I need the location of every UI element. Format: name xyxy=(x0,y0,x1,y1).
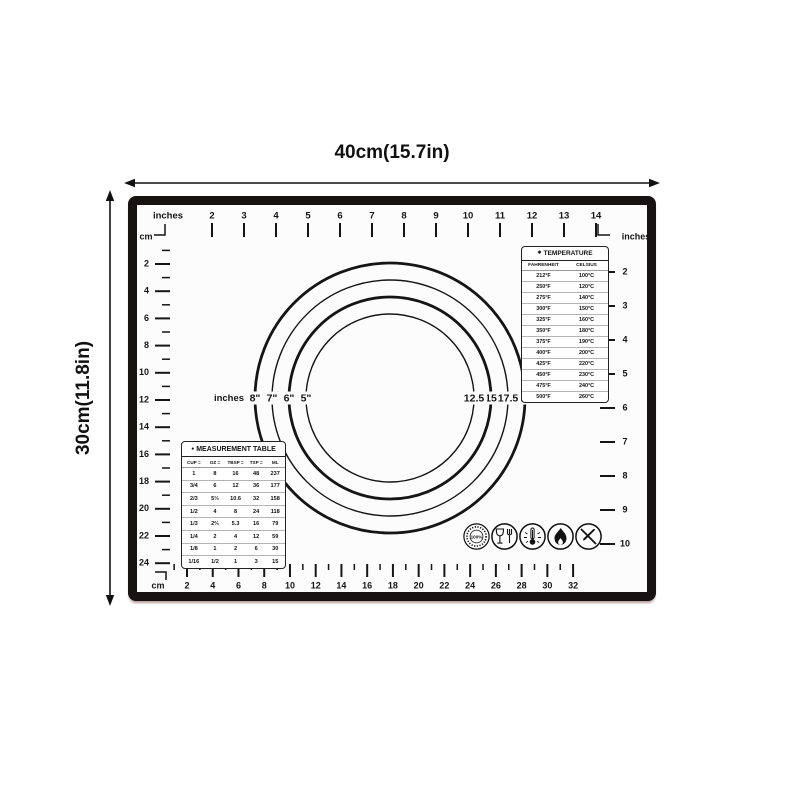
left-ruler-number: 6 xyxy=(144,313,149,323)
right-ruler-unit-label: inches xyxy=(622,231,651,241)
dot-icon: ● xyxy=(191,447,194,452)
table-row: 400°F200°C xyxy=(522,348,608,359)
left-ruler-number: 16 xyxy=(139,449,149,459)
table-cell: 6 xyxy=(206,483,225,489)
table-cell: 32 xyxy=(247,496,266,502)
table-cell: 1/8 xyxy=(182,546,206,552)
table-cell: 48 xyxy=(247,471,266,477)
table-cell: 1/3 xyxy=(182,521,206,527)
bottom-ruler-number: 32 xyxy=(568,580,578,590)
table-cell: 160°C xyxy=(565,317,608,323)
bottom-ruler-number: 4 xyxy=(210,580,215,590)
table-cell: 15 xyxy=(265,559,285,565)
table-cell: 3 xyxy=(247,559,266,565)
table-cell: 190°C xyxy=(565,339,608,345)
table-cell: 400°F xyxy=(522,350,565,356)
product-image: 40cm(15.7in) 30cm(11.8in) inches23456789… xyxy=(0,0,800,800)
right-ruler-number: 4 xyxy=(622,334,627,344)
table-row: 500°F260°C xyxy=(522,392,608,402)
table-cell: 30 xyxy=(265,546,285,552)
ring-label-inch: 5" xyxy=(301,392,312,404)
left-ruler-number: 12 xyxy=(139,394,149,404)
measurement-table-body: CUP =OZ =TBSP =TSP =ML1816482373/4612361… xyxy=(182,457,285,568)
table-cell: 230°C xyxy=(565,372,608,378)
temperature-table-body: FAHRENHEITCELSIUS212°F100°C250°F120°C275… xyxy=(522,261,608,402)
table-cell: TSP = xyxy=(247,460,266,465)
right-ruler-number: 6 xyxy=(622,402,627,412)
top-ruler-unit-label: inches xyxy=(153,211,183,222)
ring-label-cm: 12.5 xyxy=(464,392,485,404)
table-cell: 118 xyxy=(265,509,285,515)
wine-glass-icon xyxy=(496,529,503,536)
table-cell: 240°C xyxy=(565,383,608,389)
bottom-ruler-number: 8 xyxy=(262,580,267,590)
table-row: 325°F160°C xyxy=(522,315,608,326)
baking-mat: inches234567891011121314cminches24681012… xyxy=(128,196,656,601)
right-ruler-number: 7 xyxy=(622,436,627,446)
table-cell: FAHRENHEIT xyxy=(522,263,565,268)
arrow-head-top xyxy=(106,190,114,201)
table-cell: TBSP = xyxy=(224,460,247,465)
left-ruler-number: 8 xyxy=(144,340,149,350)
width-label: 40cm(15.7in) xyxy=(128,142,656,164)
bottom-ruler-number: 10 xyxy=(285,580,295,590)
left-ruler-number: 4 xyxy=(144,286,149,296)
table-cell: 120°C xyxy=(565,284,608,290)
bottom-ruler-number: 26 xyxy=(491,580,501,590)
bottom-ruler-number: 16 xyxy=(362,580,372,590)
bottom-ruler-number: 6 xyxy=(236,580,241,590)
table-row: 450°F230°C xyxy=(522,370,608,381)
top-ruler-number: 6 xyxy=(337,211,342,222)
table-row: 275°F140°C xyxy=(522,293,608,304)
table-row: 1/812630 xyxy=(182,544,285,557)
height-label: 30cm(11.8in) xyxy=(73,313,95,483)
right-ruler-number: 8 xyxy=(622,470,627,480)
table-cell: 1/2 xyxy=(182,509,206,515)
bottom-ruler-number: 30 xyxy=(542,580,552,590)
table-cell: 8 xyxy=(206,471,225,477)
measurement-table-title: ● MEASUREMENT TABLE xyxy=(182,442,285,457)
table-cell: 350°F xyxy=(522,328,565,334)
table-cell: 12 xyxy=(247,534,266,540)
table-cell: 2 xyxy=(206,534,225,540)
table-cell: 200°C xyxy=(565,350,608,356)
table-row: 212°F100°C xyxy=(522,271,608,282)
table-cell: 2 xyxy=(224,546,247,552)
left-ruler-number: 22 xyxy=(139,530,149,540)
right-ruler-number: 9 xyxy=(622,504,627,514)
bottom-ruler-number: 20 xyxy=(414,580,424,590)
table-cell: 260°C xyxy=(565,394,608,400)
ring-label-inch: 7" xyxy=(267,392,278,404)
table-cell: 8 xyxy=(224,509,247,515)
flame-badge xyxy=(547,523,574,550)
temperature-table-title: ✱ TEMPERATURE xyxy=(522,247,608,261)
arrow-head-right xyxy=(649,179,660,187)
table-cell: 220°C xyxy=(565,361,608,367)
table-cell: 425°F xyxy=(522,361,565,367)
table-cell: 177 xyxy=(265,483,285,489)
table-cell: CUP = xyxy=(182,460,206,465)
table-cell: 4 xyxy=(224,534,247,540)
table-cell: 212°F xyxy=(522,273,565,279)
table-cell: 4 xyxy=(206,509,225,515)
table-cell: 3/4 xyxy=(182,483,206,489)
food-safe-badge xyxy=(491,523,518,550)
table-cell: 450°F xyxy=(522,372,565,378)
table-cell: 1 xyxy=(224,559,247,565)
table-row: 250°F120°C xyxy=(522,282,608,293)
table-cell: 1/16 xyxy=(182,559,206,565)
table-cell: 6 xyxy=(247,546,266,552)
table-row: 425°F220°C xyxy=(522,359,608,370)
table-cell: 1/2 xyxy=(206,559,225,565)
table-cell: OZ = xyxy=(206,460,225,465)
measurement-table: ● MEASUREMENT TABLE CUP =OZ =TBSP =TSP =… xyxy=(181,441,286,569)
top-ruler-number: 7 xyxy=(369,211,374,222)
table-cell: 16 xyxy=(224,471,247,477)
top-ruler-number: 14 xyxy=(591,211,602,222)
table-cell: CELSIUS xyxy=(565,263,608,268)
top-ruler-number: 2 xyxy=(209,211,214,222)
table-cell: 180°C xyxy=(565,328,608,334)
left-ruler-unit-label: cm xyxy=(139,231,152,241)
table-cell: 2/3 xyxy=(182,496,206,502)
top-ruler-number: 12 xyxy=(527,211,538,222)
top-ruler-number: 3 xyxy=(241,211,246,222)
bottom-ruler-number: 14 xyxy=(336,580,346,590)
table-row: FAHRENHEITCELSIUS xyxy=(522,261,608,271)
table-cell: 500°F xyxy=(522,394,565,400)
table-cell: 475°F xyxy=(522,383,565,389)
top-ruler-number: 13 xyxy=(559,211,570,222)
bottom-ruler-number: 24 xyxy=(465,580,475,590)
table-cell: 158 xyxy=(265,496,285,502)
table-cell: 275°F xyxy=(522,295,565,301)
table-cell: 2⅔ xyxy=(206,521,225,527)
no-cutting-badge xyxy=(575,523,602,550)
table-cell: 12 xyxy=(224,483,247,489)
table-cell: 237 xyxy=(265,471,285,477)
table-row: 300°F150°C xyxy=(522,304,608,315)
top-ruler-number: 9 xyxy=(433,211,438,222)
certification-badge-row: 100% xyxy=(463,523,602,550)
table-row: 181648237 xyxy=(182,468,285,481)
ring-label-cm: 17.5 xyxy=(498,392,519,404)
table-cell: 300°F xyxy=(522,306,565,312)
thermometer-bulb xyxy=(530,539,536,545)
table-cell: 79 xyxy=(265,521,285,527)
corner-bracket xyxy=(154,224,165,235)
table-cell: 140°C xyxy=(565,295,608,301)
bottom-ruler-number: 22 xyxy=(439,580,449,590)
measuring-ring xyxy=(289,297,491,499)
arrow-head-left xyxy=(124,179,135,187)
table-cell: 1 xyxy=(182,471,206,477)
bottom-ruler-number: 2 xyxy=(184,580,189,590)
table-row: 3/461236177 xyxy=(182,481,285,494)
left-ruler-number: 10 xyxy=(139,367,149,377)
glass-stem xyxy=(497,536,502,543)
badge-100-text: 100% xyxy=(471,534,483,539)
top-ruler-number: 4 xyxy=(273,211,279,222)
table-row: 350°F180°C xyxy=(522,326,608,337)
table-cell: 24 xyxy=(247,509,266,515)
star-icon: ✱ xyxy=(537,251,541,256)
corner-bracket xyxy=(598,224,610,235)
table-cell: 150°C xyxy=(565,306,608,312)
top-ruler-number: 8 xyxy=(401,211,406,222)
table-row: 1/4241259 xyxy=(182,531,285,544)
right-ruler-number: 5 xyxy=(622,368,627,378)
height-arrow xyxy=(103,190,117,606)
table-cell: 375°F xyxy=(522,339,565,345)
natural-100-silicone-badge: 100% xyxy=(463,523,490,550)
table-cell: 250°F xyxy=(522,284,565,290)
bottom-ruler-number: 18 xyxy=(388,580,398,590)
table-row: CUP =OZ =TBSP =TSP =ML xyxy=(182,457,285,468)
table-row: 475°F240°C xyxy=(522,381,608,392)
bottom-ruler-number: 12 xyxy=(311,580,321,590)
right-ruler-number: 3 xyxy=(622,300,627,310)
heat-resistant-badge xyxy=(519,523,546,550)
arrow-head-bottom xyxy=(106,595,114,606)
table-cell: 16 xyxy=(247,521,266,527)
ring-label-inch: 8" xyxy=(250,392,261,404)
left-ruler-number: 20 xyxy=(139,503,149,513)
table-row: 1/161/21315 xyxy=(182,556,285,568)
corner-bracket xyxy=(155,572,166,580)
table-cell: 325°F xyxy=(522,317,565,323)
table-cell: 100°C xyxy=(565,273,608,279)
table-row: 1/32⅔5.31679 xyxy=(182,518,285,531)
knife-icon xyxy=(583,529,595,541)
table-row: 375°F190°C xyxy=(522,337,608,348)
left-ruler-number: 2 xyxy=(144,258,149,268)
bottom-ruler-unit-label: cm xyxy=(151,580,164,590)
table-cell: ML xyxy=(265,460,285,465)
bottom-ruler-number: 28 xyxy=(517,580,527,590)
table-cell: 5⅓ xyxy=(206,496,225,502)
table-cell: 36 xyxy=(247,483,266,489)
left-ruler-number: 18 xyxy=(139,476,149,486)
measurement-table-title-text: MEASUREMENT TABLE xyxy=(196,446,276,453)
table-cell: 1/4 xyxy=(182,534,206,540)
top-ruler-number: 10 xyxy=(463,211,474,222)
ring-label-inch: 6" xyxy=(284,392,295,404)
fork-icon xyxy=(508,529,512,543)
top-ruler-number: 11 xyxy=(495,211,506,222)
top-ruler-number: 5 xyxy=(305,211,311,222)
left-ruler-number: 24 xyxy=(139,558,149,568)
temperature-table-title-text: TEMPERATURE xyxy=(544,250,593,257)
ring-unit-inches: inches xyxy=(214,393,244,404)
table-cell: 1 xyxy=(206,546,225,552)
left-ruler-number: 14 xyxy=(139,422,149,432)
table-cell: 59 xyxy=(265,534,285,540)
table-cell: 10.6 xyxy=(224,496,247,502)
table-row: 1/24824118 xyxy=(182,506,285,519)
width-arrow xyxy=(124,176,660,190)
measuring-ring xyxy=(306,314,474,482)
table-cell: 5.3 xyxy=(224,521,247,527)
temperature-table: ✱ TEMPERATURE FAHRENHEITCELSIUS212°F100°… xyxy=(521,246,609,403)
table-row: 2/35⅓10.632158 xyxy=(182,493,285,506)
right-ruler-number: 2 xyxy=(622,266,627,276)
right-ruler-number: 10 xyxy=(620,538,630,548)
